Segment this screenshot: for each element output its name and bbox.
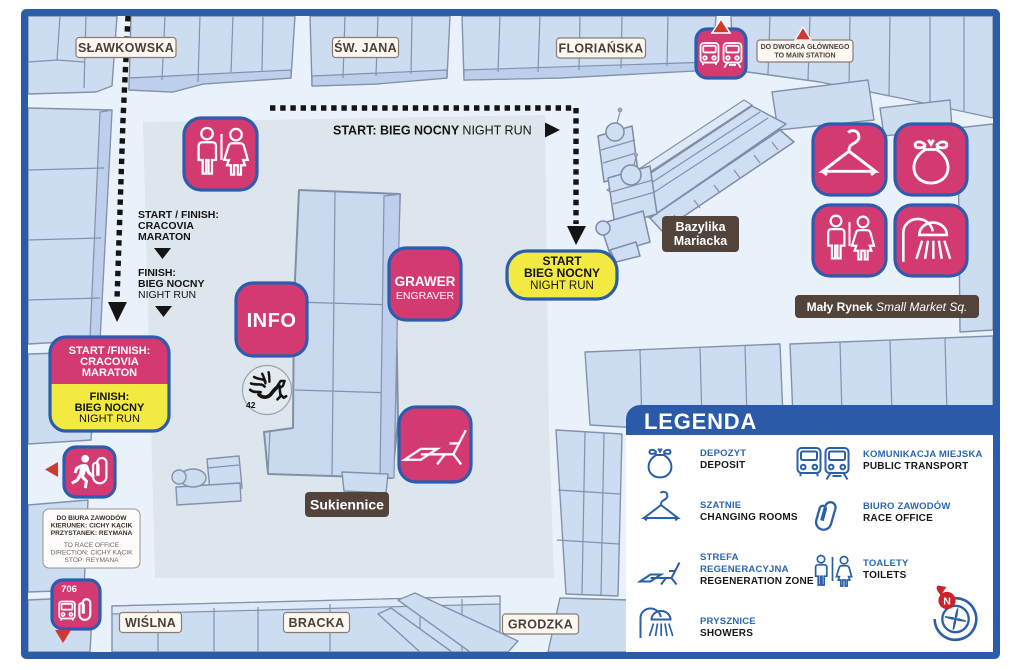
svg-text:NIGHT RUN: NIGHT RUN bbox=[530, 280, 594, 292]
svg-text:BRACKA: BRACKA bbox=[289, 616, 345, 630]
svg-text:TOALETY: TOALETY bbox=[863, 558, 909, 569]
svg-text:STOP: REYMANA: STOP: REYMANA bbox=[64, 557, 119, 564]
svg-text:N: N bbox=[943, 596, 951, 608]
svg-text:START: BIEG NOCNY NIGHT RUN: START: BIEG NOCNY NIGHT RUN bbox=[333, 124, 532, 138]
svg-text:Sukiennice: Sukiennice bbox=[310, 497, 384, 513]
svg-text:42: 42 bbox=[246, 400, 256, 410]
svg-text:BIEG NOCNY: BIEG NOCNY bbox=[524, 266, 600, 280]
svg-text:PUBLIC TRANSPORT: PUBLIC TRANSPORT bbox=[863, 461, 968, 472]
svg-text:SHOWERS: SHOWERS bbox=[700, 628, 753, 639]
svg-text:FLORIAŃSKA: FLORIAŃSKA bbox=[559, 40, 644, 55]
svg-text:REGENERATION ZONE: REGENERATION ZONE bbox=[700, 576, 814, 587]
svg-text:BIURO ZAWODÓW: BIURO ZAWODÓW bbox=[863, 500, 951, 512]
svg-text:DIRECTION: CICHY KĄCIK: DIRECTION: CICHY KĄCIK bbox=[51, 550, 134, 557]
svg-text:MARATON: MARATON bbox=[82, 367, 137, 379]
svg-text:DO BIURA ZAWODÓW: DO BIURA ZAWODÓW bbox=[56, 513, 127, 522]
svg-text:KOMUNIKACJA MIEJSKA: KOMUNIKACJA MIEJSKA bbox=[863, 449, 983, 460]
svg-text:STREFA: STREFA bbox=[700, 552, 739, 563]
svg-text:TOILETS: TOILETS bbox=[863, 570, 907, 581]
svg-text:NIGHT RUN: NIGHT RUN bbox=[79, 413, 140, 425]
svg-text:706: 706 bbox=[61, 584, 77, 595]
svg-text:LEGENDA: LEGENDA bbox=[644, 409, 757, 434]
svg-text:NIGHT RUN: NIGHT RUN bbox=[138, 289, 196, 301]
svg-text:INFO: INFO bbox=[247, 310, 297, 332]
svg-text:Mały Rynek Small Market Sq.: Mały Rynek Small Market Sq. bbox=[807, 300, 968, 314]
svg-text:GRODZKA: GRODZKA bbox=[508, 617, 573, 631]
svg-text:ŚW. JANA: ŚW. JANA bbox=[334, 40, 397, 55]
svg-text:DEPOSIT: DEPOSIT bbox=[700, 460, 745, 471]
svg-text:DO DWORCA GŁÓWNEGO: DO DWORCA GŁÓWNEGO bbox=[761, 42, 850, 51]
svg-text:GRAWER: GRAWER bbox=[395, 274, 456, 289]
svg-text:TO RACE OFFICE: TO RACE OFFICE bbox=[64, 542, 120, 549]
svg-text:SZATNIE: SZATNIE bbox=[700, 500, 741, 511]
svg-text:RACE OFFICE: RACE OFFICE bbox=[863, 513, 933, 524]
svg-text:SŁAWKOWSKA: SŁAWKOWSKA bbox=[78, 41, 174, 55]
svg-text:TO MAIN STATION: TO MAIN STATION bbox=[774, 53, 835, 60]
svg-text:PRZYSTANEK: REYMANA: PRZYSTANEK: REYMANA bbox=[51, 530, 133, 537]
svg-text:CHANGING ROOMS: CHANGING ROOMS bbox=[700, 512, 798, 523]
svg-text:MARATON: MARATON bbox=[138, 231, 191, 243]
svg-text:KIERUNEK: CICHY KĄCIK: KIERUNEK: CICHY KĄCIK bbox=[51, 523, 133, 530]
svg-text:Bazylika: Bazylika bbox=[675, 220, 726, 234]
svg-text:Mariacka: Mariacka bbox=[674, 234, 729, 248]
svg-text:PRYSZNICE: PRYSZNICE bbox=[700, 616, 756, 627]
svg-text:DEPOZYT: DEPOZYT bbox=[700, 448, 746, 459]
svg-text:REGENERACYJNA: REGENERACYJNA bbox=[700, 564, 789, 575]
svg-text:ENGRAVER: ENGRAVER bbox=[396, 290, 455, 302]
svg-text:WIŚLNA: WIŚLNA bbox=[125, 615, 176, 630]
